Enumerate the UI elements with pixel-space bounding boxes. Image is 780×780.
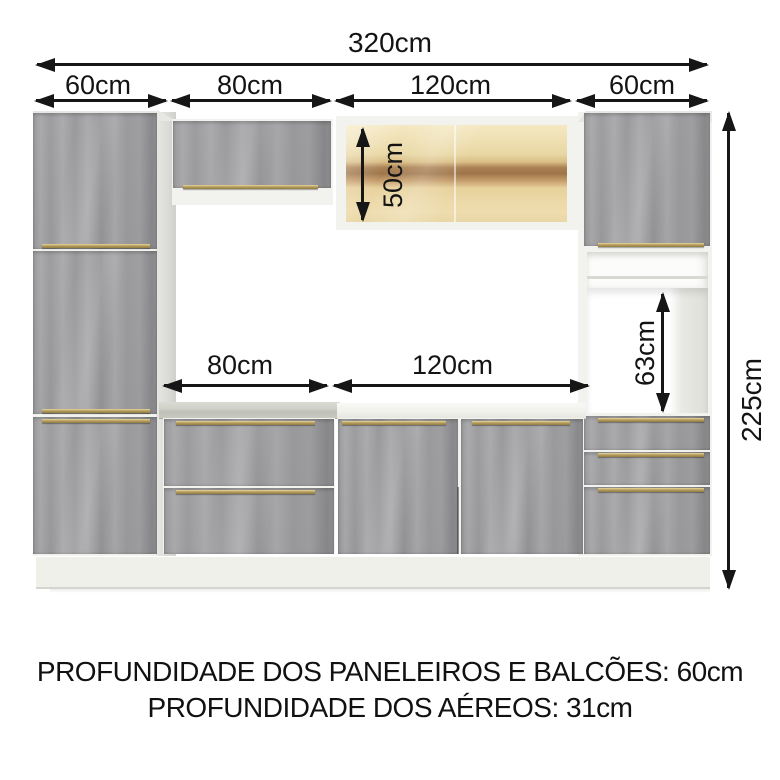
tall-cabinet-door-top [33, 113, 157, 249]
depth-note-uppers: PROFUNDIDADE DOS AÉREOS: 31cm [0, 692, 780, 724]
plinth [36, 557, 710, 589]
base-80-drawer-top [164, 419, 334, 486]
vertical-door-handle [457, 487, 459, 554]
base-120-door-right [461, 419, 583, 554]
drawer-handle [598, 418, 704, 422]
section-width-arrow-120 [336, 99, 570, 102]
section-width-label-80: 80cm [210, 72, 290, 99]
countertop-80 [159, 402, 340, 419]
upper-cabinet-80-door [173, 121, 331, 188]
base-80-drawer-bottom [164, 488, 334, 554]
door-handle [183, 185, 318, 189]
drawer-handle [598, 488, 704, 492]
door-handle [598, 243, 704, 247]
counter-width-label-120: 120cm [412, 352, 492, 379]
counter-width-label-80: 80cm [200, 352, 280, 379]
drawer-handle [176, 490, 315, 494]
total-height-label: 225cm [707, 355, 780, 445]
ground-shadow [50, 589, 710, 593]
shelf-board [587, 276, 708, 279]
tall-cabinet-door-bottom [33, 417, 157, 554]
section-width-arrow-80 [172, 99, 330, 102]
drawer-handle [176, 421, 315, 425]
door-handle [472, 421, 570, 425]
drawer-handle [598, 453, 704, 457]
kitchen-dimension-diagram: 320cm 60cm 80cm 120cm 60cm 50cm 63cm [0, 0, 780, 780]
base-120-door-left [338, 419, 458, 554]
door-handle [342, 421, 446, 425]
section-width-label-right-60: 60cm [602, 72, 682, 99]
glass-height-label: 50cm [360, 143, 426, 207]
countertop-120 [337, 403, 586, 419]
open-shelf-niche [587, 252, 708, 288]
tower-drawer-3 [584, 487, 710, 554]
door-handle [42, 244, 150, 248]
section-width-arrow-right-60 [577, 99, 707, 102]
section-width-label-left-60: 60cm [58, 72, 138, 99]
glass-pane-divider [454, 125, 456, 222]
tall-cabinet-door-middle [33, 251, 157, 414]
tower-cabinet-door-top [584, 113, 710, 246]
total-height-arrow [727, 113, 730, 588]
depth-note-cabinets: PROFUNDIDADE DOS PANELEIROS E BALCÕES: 6… [0, 656, 780, 688]
counter-width-arrow-120 [334, 384, 588, 387]
door-handle [42, 409, 150, 413]
total-width-arrow [37, 63, 707, 66]
section-width-label-120: 120cm [410, 72, 490, 99]
total-width-label: 320cm [340, 29, 440, 57]
niche-height-label: 63cm [612, 321, 678, 385]
section-width-arrow-left-60 [36, 99, 166, 102]
door-handle [42, 419, 150, 423]
counter-width-arrow-80 [164, 384, 327, 387]
